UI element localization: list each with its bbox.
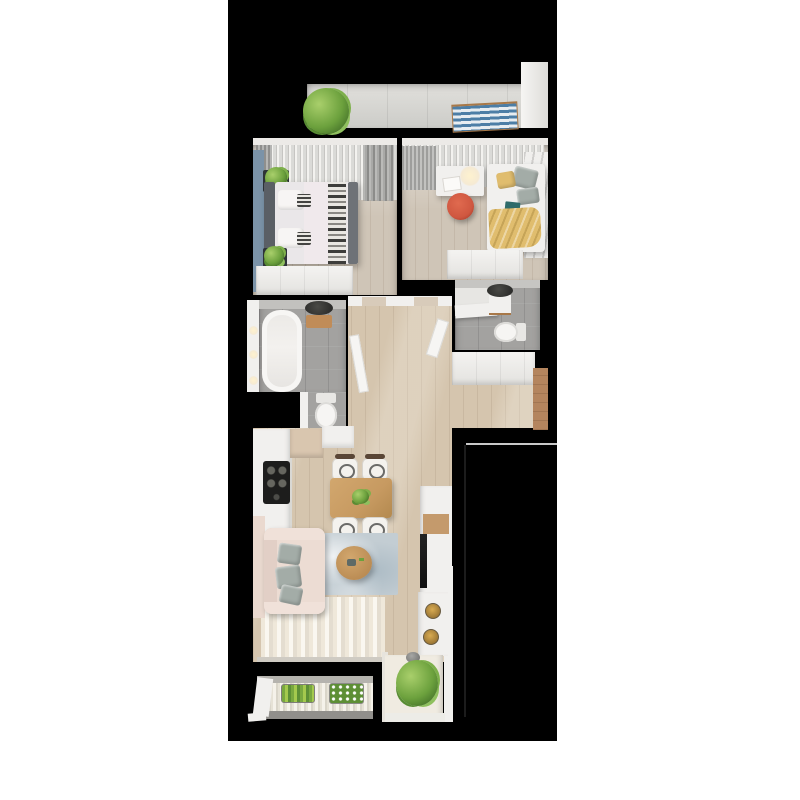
sofa-armrest-north [264,528,325,540]
living-window-sill [257,657,385,662]
wc-sink-cabinet [489,295,511,315]
bed-cushion-2 [297,232,311,245]
entry-wood-wall [533,368,548,430]
office-daybed [487,164,545,252]
console-desk [418,592,448,656]
daybed-yellow-blanket [488,207,542,250]
bed-patterned-runner [328,182,346,264]
office-red-chair [447,193,474,220]
sofa [264,528,325,614]
toilet-main [315,402,337,428]
bathroom-sconce-2 [249,350,258,359]
terrace-outline-top [466,443,557,445]
tv-unit-wood-niche [423,514,449,534]
wc-sink [487,284,513,297]
bathtub [262,310,302,392]
nook-bottom-wall [385,713,445,722]
sofa-pillow-1 [277,542,303,565]
bedroom-curtain-rail [253,138,397,145]
tv-screen [420,534,427,588]
entry-wardrobe [452,352,535,385]
balcony-plant [303,88,349,134]
kitchen-cooktop [263,461,290,504]
toilet-alcove-wall-left [300,392,308,430]
bed-cushion-1 [297,194,311,207]
bar-stool-1 [425,603,441,619]
daybed-yellow-pillow [496,171,517,190]
flower-planter [329,683,364,704]
bathroom-sink [305,301,333,315]
bedroom-wardrobe [256,266,353,295]
nook-large-plant [396,660,438,706]
bathroom-sconce-1 [249,326,258,335]
bathroom-shelf [306,315,332,328]
dining-centerpiece [352,489,369,504]
bedroom-curtain-bunch-right [363,145,394,201]
open-book [442,176,462,192]
desk-lamp-glow [460,166,480,186]
coffee-table [336,546,372,580]
balcony-bottom-sliver [248,712,267,722]
office-curtain-rail [402,138,548,145]
terrace-outline-left [464,445,466,717]
balcony-bottom-top-rail [257,676,373,683]
bar-stool-2 [423,629,439,645]
balcony-end-wall [521,62,548,128]
floorplan-canvas [0,0,800,800]
doorway-threshold-bedroom [362,297,386,306]
wc-toilet [494,322,518,342]
bedroom-plant-south [264,246,284,266]
bed-foot-frame [348,182,358,264]
bathroom-sconce-3 [249,376,258,385]
office-wardrobe [447,250,523,279]
balcony-bottom-bottom-rail [257,711,373,719]
striped-sun-lounger [451,101,518,132]
kitchen-tall-cabinet [290,429,323,458]
kitchen-upper-cabinet [322,426,354,448]
herb-planter [281,684,315,703]
office-curtain-bunch-left [402,146,436,190]
doorway-threshold-office [414,297,438,306]
